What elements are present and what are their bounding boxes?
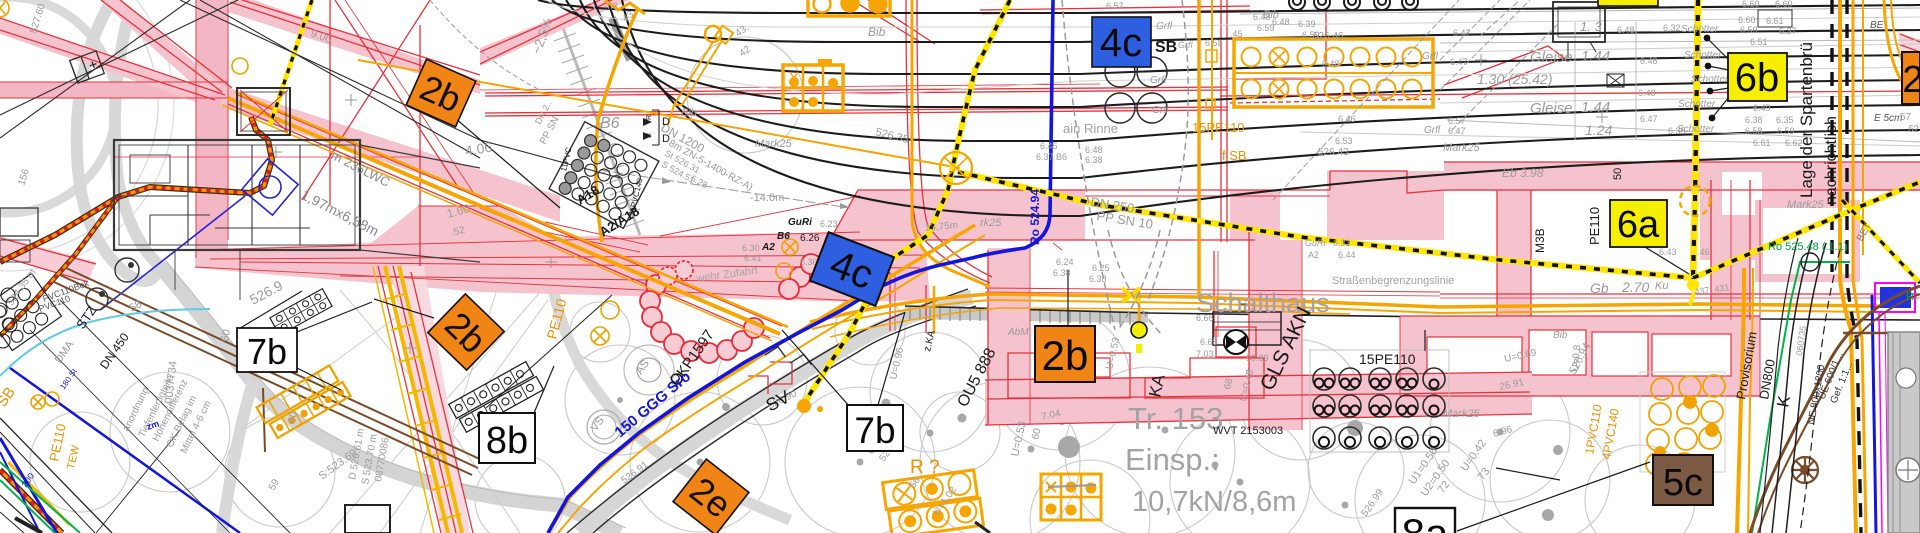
svg-text:.46: .46 <box>1697 247 1710 257</box>
svg-text:1.44: 1.44 <box>1581 99 1610 116</box>
svg-text:6.26: 6.26 <box>800 233 820 244</box>
svg-text:6.59: 6.59 <box>1777 126 1795 136</box>
svg-text:6.30: 6.30 <box>742 243 760 253</box>
svg-text:6.25: 6.25 <box>1092 263 1110 273</box>
svg-text:Einsp.:: Einsp.: <box>1125 442 1220 477</box>
svg-text:57: 57 <box>1900 112 1912 123</box>
svg-text:Schotter: Schotter <box>1691 74 1729 85</box>
svg-text:Mark25: Mark25 <box>1787 199 1825 211</box>
svg-text:60: 60 <box>219 328 233 342</box>
svg-text:R: R <box>646 115 653 120</box>
svg-text:1.44: 1.44 <box>1581 48 1610 65</box>
svg-text:6.48: 6.48 <box>1638 88 1656 98</box>
svg-text:Schotter: Schotter <box>1684 50 1722 61</box>
svg-text:Grfl: Grfl <box>1150 75 1167 86</box>
svg-text:2: 2 <box>1902 59 1920 101</box>
svg-text:Bib: Bib <box>681 107 697 119</box>
svg-text:6.38: 6.38 <box>1053 268 1071 278</box>
svg-text:6.49: 6.49 <box>1753 103 1771 113</box>
svg-text:A2: A2 <box>761 242 775 253</box>
svg-text:62: 62 <box>1908 124 1920 135</box>
svg-text:6.58: 6.58 <box>1205 38 1223 48</box>
svg-text:6.53: 6.53 <box>1335 136 1353 146</box>
svg-text:6.43: 6.43 <box>1659 247 1677 257</box>
svg-text:6.38: 6.38 <box>1085 155 1103 165</box>
svg-text:ain Rinne: ain Rinne <box>1063 121 1118 136</box>
svg-text:R: R <box>1906 291 1914 303</box>
svg-text:6.61: 6.61 <box>1753 138 1771 148</box>
svg-text:rk25: rk25 <box>980 217 1002 229</box>
svg-text:6.60: 6.60 <box>1738 15 1756 25</box>
svg-text:6.60: 6.60 <box>1775 0 1793 9</box>
svg-text:2b: 2b <box>1042 332 1089 379</box>
svg-text:6.32: 6.32 <box>1663 23 1681 33</box>
svg-text:Gleise: Gleise <box>1530 100 1573 117</box>
svg-text:1. 3: 1. 3 <box>1580 19 1602 34</box>
svg-text:7b: 7b <box>247 331 287 372</box>
svg-text:4c: 4c <box>1100 21 1142 65</box>
svg-text:Schotter: Schotter <box>1677 124 1715 135</box>
svg-text:6.51: 6.51 <box>1750 37 1768 47</box>
svg-text:AbM: AbM <box>1007 327 1029 338</box>
svg-text:Grfl: Grfl <box>1152 105 1169 116</box>
svg-text:Ku: Ku <box>1655 280 1668 292</box>
svg-text:Gb: Gb <box>1590 280 1609 296</box>
svg-text:D: D <box>662 133 670 145</box>
svg-text:6.61: 6.61 <box>1766 16 1784 26</box>
svg-text:1.30 (25.42): 1.30 (25.42) <box>1477 71 1553 87</box>
svg-text:6.31: 6.31 <box>1333 238 1351 248</box>
svg-text:Grfl: Grfl <box>1424 125 1441 136</box>
svg-text:1.24: 1.24 <box>1585 122 1612 138</box>
svg-text:6b: 6b <box>1735 56 1780 100</box>
svg-text:6.24: 6.24 <box>1056 257 1074 267</box>
svg-text:WVT 2153003: WVT 2153003 <box>1213 425 1283 437</box>
svg-text:8a: 8a <box>1402 510 1449 533</box>
svg-text:6.38: 6.38 <box>1089 274 1107 284</box>
svg-text:4,3: 4,3 <box>605 1 618 11</box>
svg-text:6.57: 6.57 <box>1106 1 1124 11</box>
svg-text:Schotter: Schotter <box>1678 99 1716 110</box>
svg-text:Mark25: Mark25 <box>1443 142 1481 154</box>
svg-text:6.47: 6.47 <box>1450 57 1468 67</box>
svg-text:6.59: 6.59 <box>1740 25 1758 35</box>
svg-text:15PE110: 15PE110 <box>1192 120 1245 135</box>
svg-text:7b: 7b <box>854 410 895 451</box>
svg-text:15PE110: 15PE110 <box>1359 351 1416 367</box>
svg-text:Lage der Spartenbrü: Lage der Spartenbrü <box>1797 42 1816 198</box>
svg-text:8b: 8b <box>486 420 528 462</box>
svg-text:GuRi: GuRi <box>1305 238 1327 248</box>
svg-text:B6: B6 <box>777 231 790 242</box>
svg-text:Bib: Bib <box>868 25 886 39</box>
svg-text:E 5cm: E 5cm <box>1874 113 1902 124</box>
svg-text:Ro 525.48 (.1.1): Ro 525.48 (.1.1) <box>1768 241 1848 253</box>
svg-text:Ro 524.94: Ro 524.94 <box>1028 189 1042 245</box>
svg-text:nachrichtlich: nachrichtlich <box>1823 116 1840 205</box>
svg-text:M3B: M3B <box>1533 228 1547 253</box>
svg-text:526.43: 526.43 <box>1318 147 1349 158</box>
svg-text:Grfl: Grfl <box>1178 40 1193 50</box>
svg-text:6.60: 6.60 <box>1742 0 1760 9</box>
svg-text:6.38: 6.38 <box>1745 115 1763 125</box>
svg-text:50: 50 <box>1612 168 1624 180</box>
svg-text:6.41: 6.41 <box>744 253 762 263</box>
svg-text:6.45: 6.45 <box>1040 141 1058 151</box>
svg-text:-14.0m-: -14.0m- <box>750 192 788 204</box>
svg-text:B6: B6 <box>600 115 620 132</box>
svg-text:6.48: 6.48 <box>1322 59 1340 69</box>
svg-text:6.35: 6.35 <box>1776 115 1794 125</box>
svg-text:6.59: 6.59 <box>1302 30 1320 40</box>
svg-text:6.44: 6.44 <box>1338 250 1356 260</box>
svg-text:2.70: 2.70 <box>1621 279 1649 295</box>
svg-text:60: 60 <box>286 410 300 424</box>
svg-text:Schotter: Schotter <box>1681 24 1719 35</box>
svg-text:6.48: 6.48 <box>1617 25 1635 35</box>
svg-text:6.39: 6.39 <box>1298 19 1316 29</box>
svg-text:PE110: PE110 <box>1587 207 1602 245</box>
svg-text:6.48: 6.48 <box>1640 56 1658 66</box>
svg-text:R ?: R ? <box>910 457 940 478</box>
svg-text:D: D <box>662 116 670 128</box>
svg-text:50.89: 50.89 <box>1246 353 1269 363</box>
svg-text:5c: 5c <box>1663 462 1703 504</box>
svg-text:Bib: Bib <box>1263 9 1279 21</box>
svg-text:6.47: 6.47 <box>1640 114 1658 124</box>
svg-text:6.68: 6.68 <box>1200 337 1218 347</box>
svg-text:Mark25: Mark25 <box>755 138 793 150</box>
svg-text:Tr. 153: Tr. 153 <box>1128 401 1223 436</box>
svg-text:Straßenbegrenzungslinie: Straßenbegrenzungslinie <box>1332 275 1454 287</box>
svg-text:Grfl: Grfl <box>1422 51 1439 62</box>
svg-text:GuRi: GuRi <box>788 217 812 228</box>
svg-text:6.23: 6.23 <box>820 219 838 229</box>
svg-text:f.SB: f.SB <box>1222 148 1247 163</box>
svg-text:BE: BE <box>1870 20 1884 31</box>
svg-text:Grfl: Grfl <box>1156 21 1173 32</box>
svg-text:6.47: 6.47 <box>1448 126 1466 136</box>
svg-text:Eb 3.98: Eb 3.98 <box>1502 166 1544 180</box>
svg-text:10,7kN/8,6m: 10,7kN/8,6m <box>1132 486 1296 518</box>
svg-text:6.58: 6.58 <box>1745 126 1763 136</box>
svg-text:Bib: Bib <box>1553 330 1568 341</box>
svg-text:6.48: 6.48 <box>1085 145 1103 155</box>
svg-text:7.03: 7.03 <box>1196 349 1214 359</box>
svg-text:6.37: 6.37 <box>1779 26 1797 36</box>
svg-text:SB: SB <box>1155 39 1177 56</box>
svg-text:6a: 6a <box>1617 204 1660 246</box>
svg-text:Gleise: Gleise <box>1530 49 1573 66</box>
svg-text:A2: A2 <box>1308 250 1319 260</box>
svg-text:.45: .45 <box>1230 29 1243 39</box>
svg-text:6.46: 6.46 <box>1338 114 1356 124</box>
svg-text:Mark25: Mark25 <box>1443 408 1481 420</box>
svg-text:6.37 B6: 6.37 B6 <box>1036 152 1067 162</box>
svg-text:R: R <box>646 133 653 138</box>
svg-text:6.57: 6.57 <box>1448 116 1466 126</box>
svg-text:6.47: 6.47 <box>1453 28 1471 38</box>
